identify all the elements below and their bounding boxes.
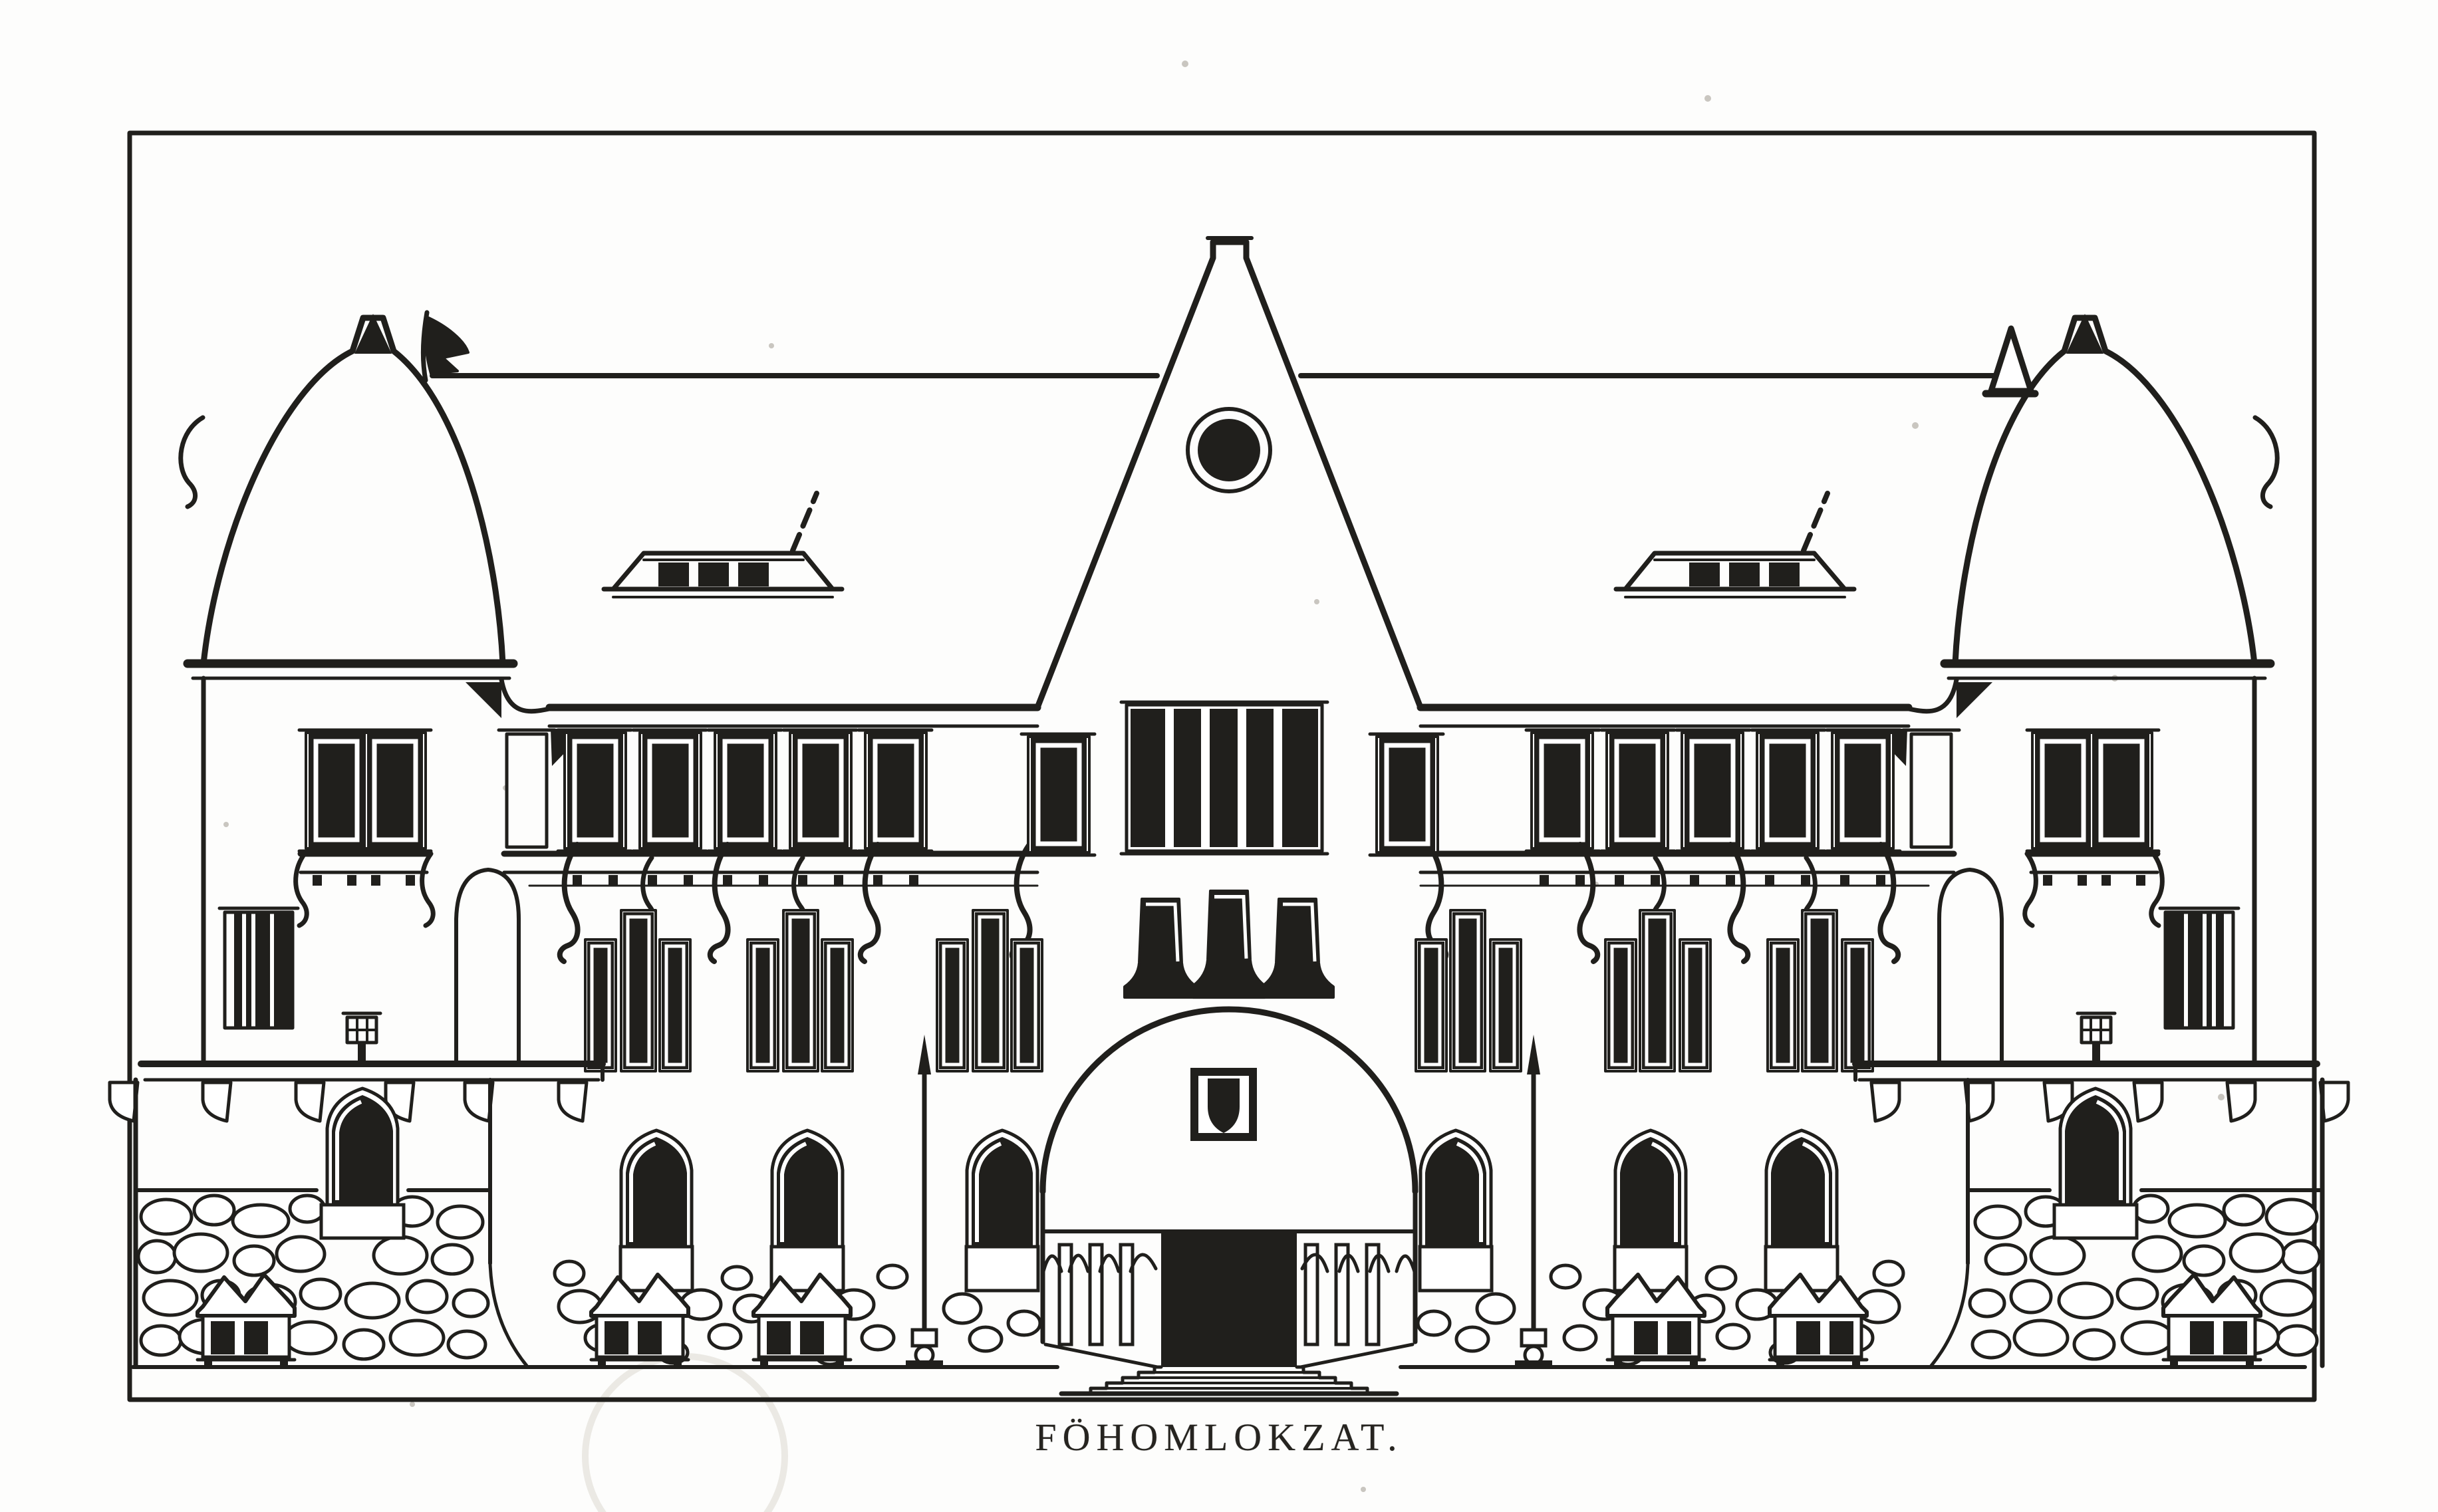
- entrance: [1043, 1009, 1415, 1394]
- tower-striped-window: [219, 908, 298, 1028]
- roof-hatch: [793, 493, 817, 551]
- roof-dormer: [604, 553, 842, 597]
- scanned-page: FÖHOMLOKZAT.: [0, 0, 2438, 1512]
- figure-caption: FÖHOMLOKZAT.: [0, 1415, 2438, 1459]
- second-floor-windows: [219, 870, 1042, 1071]
- entrance-door: [1161, 1233, 1297, 1367]
- facade-left-half: [110, 314, 1157, 1367]
- emblem-shield: [1190, 1068, 1257, 1141]
- upper-floor-windows: [299, 730, 932, 851]
- pennant-flag: [423, 313, 468, 380]
- rail-feet: [313, 875, 918, 886]
- facade-elevation-drawing: [0, 0, 2438, 1512]
- roof-hatch: [1804, 493, 1828, 551]
- triangle-flag: [1986, 328, 2035, 394]
- flagpole: [906, 1035, 943, 1367]
- ground-floor: [555, 1035, 1040, 1367]
- wall-scroll-anchor: [181, 418, 203, 507]
- central-gable: [1037, 238, 1421, 707]
- bell-windows: [1125, 891, 1333, 997]
- entrance-steps: [1061, 1367, 1397, 1394]
- window-sill: [321, 1205, 404, 1238]
- tower-ground-window: [327, 1088, 398, 1207]
- gable-window-group: [1021, 702, 1443, 855]
- tower-base: [136, 1080, 527, 1366]
- grid-ornament: [343, 1013, 380, 1062]
- facade-right-half: [1301, 314, 2348, 1367]
- arched-niche: [456, 870, 519, 1063]
- stone-masonry: [138, 1196, 488, 1359]
